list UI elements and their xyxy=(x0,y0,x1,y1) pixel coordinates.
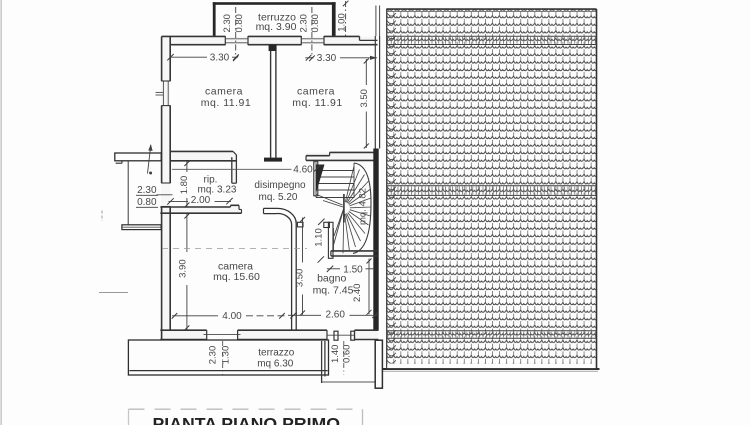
svg-text:camera: camera xyxy=(205,86,243,98)
svg-text:mq. 15.60: mq. 15.60 xyxy=(213,271,260,283)
svg-text:mq. 7.45: mq. 7.45 xyxy=(313,285,354,297)
svg-text:mq. 4.82: mq. 4.82 xyxy=(358,188,369,225)
svg-text:3.50: 3.50 xyxy=(359,89,370,108)
svg-text:3.30: 3.30 xyxy=(210,52,230,63)
svg-text:1.80: 1.80 xyxy=(179,176,190,195)
svg-text:mq. 11.91: mq. 11.91 xyxy=(292,97,342,109)
svg-text:terrazzo: terrazzo xyxy=(258,348,295,359)
svg-text:2.30: 2.30 xyxy=(222,14,233,33)
svg-text:0.60: 0.60 xyxy=(341,345,352,364)
svg-text:1.10: 1.10 xyxy=(314,228,325,247)
svg-text:2.30: 2.30 xyxy=(299,14,310,33)
svg-text:mq. 3.90: mq. 3.90 xyxy=(256,21,297,33)
svg-text:disimpegno: disimpegno xyxy=(254,180,306,191)
svg-text:mq 6.30: mq 6.30 xyxy=(257,359,294,370)
svg-text:0.80: 0.80 xyxy=(137,197,157,208)
svg-text:camera: camera xyxy=(297,86,335,98)
svg-text:0.80: 0.80 xyxy=(234,14,245,33)
svg-text:2.30: 2.30 xyxy=(137,185,157,196)
svg-text:2.40: 2.40 xyxy=(352,284,363,303)
svg-text:3.90: 3.90 xyxy=(178,259,189,278)
svg-text:1.00: 1.00 xyxy=(337,13,348,32)
svg-text:bagno: bagno xyxy=(317,273,346,285)
svg-text:4.60: 4.60 xyxy=(293,164,313,175)
svg-text:2.00: 2.00 xyxy=(191,195,211,206)
svg-text:mq. 11.91: mq. 11.91 xyxy=(201,97,251,109)
svg-text:mq. 3.23: mq. 3.23 xyxy=(198,184,237,195)
svg-text:3.50: 3.50 xyxy=(294,269,305,288)
svg-text:2.30: 2.30 xyxy=(208,346,219,365)
svg-text:1.30: 1.30 xyxy=(221,346,232,365)
svg-text:3.30: 3.30 xyxy=(317,53,337,64)
svg-text:1.40: 1.40 xyxy=(330,345,341,364)
svg-text:PIANTA PIANO PRIMO: PIANTA PIANO PRIMO xyxy=(153,414,341,425)
svg-text:2.60: 2.60 xyxy=(325,310,345,321)
svg-text:mq. 5.20: mq. 5.20 xyxy=(259,192,298,203)
svg-text:4.00: 4.00 xyxy=(222,311,242,322)
svg-text:0.80: 0.80 xyxy=(310,14,321,33)
